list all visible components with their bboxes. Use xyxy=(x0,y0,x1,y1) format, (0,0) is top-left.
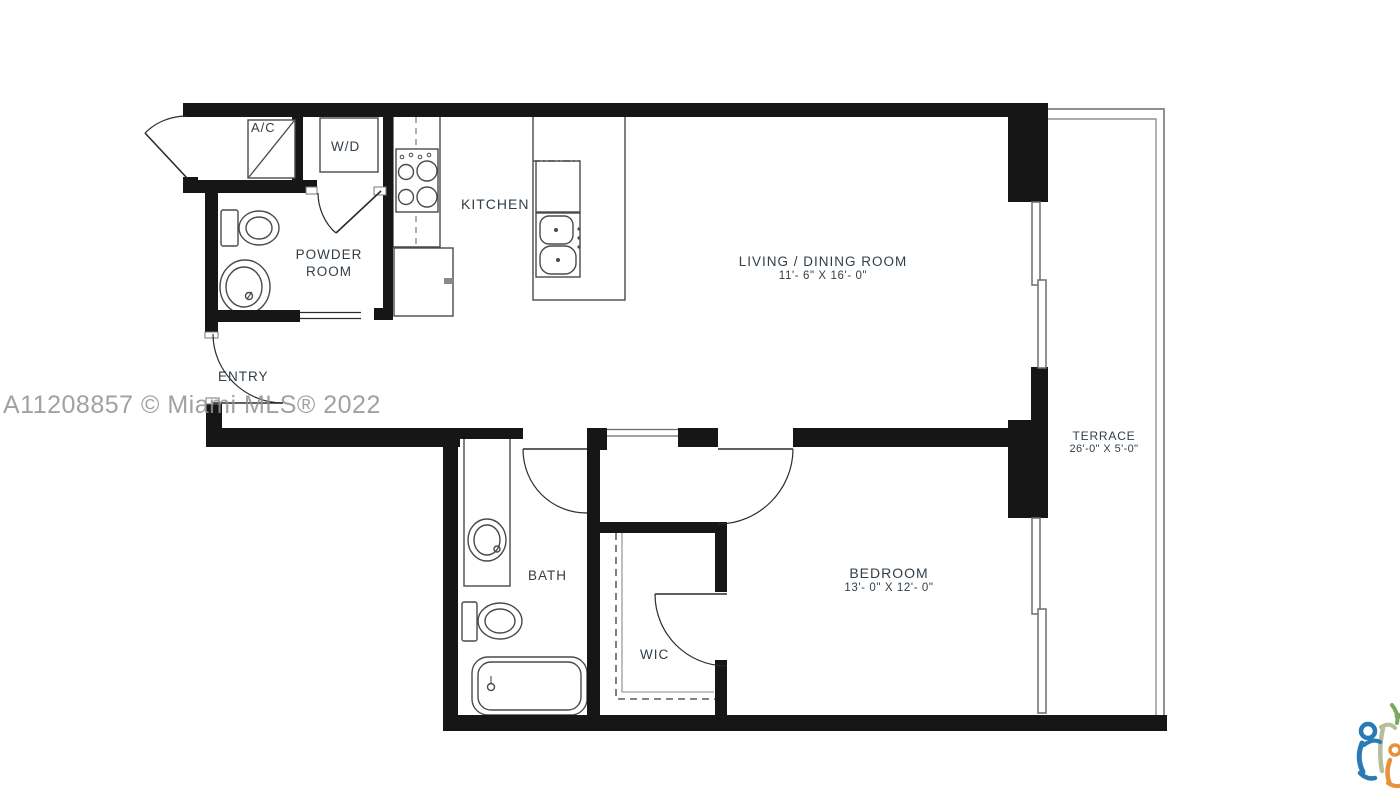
room-label-bath: BATH xyxy=(528,568,567,583)
room-label-terrace: TERRACE xyxy=(1073,429,1136,443)
floorplan-canvas: A/C W/D KITCHEN POWDER ROOM ENTRY LIVING… xyxy=(0,0,1400,808)
bath-toilet-icon xyxy=(462,602,522,641)
room-label-wd: W/D xyxy=(331,139,360,154)
room-label-living: LIVING / DINING ROOM xyxy=(739,254,908,269)
powder-pocket-door xyxy=(300,313,361,319)
cased-opening xyxy=(607,426,678,448)
powder-toilet-icon xyxy=(221,210,279,246)
terrace-boundary xyxy=(1048,109,1164,729)
powder-line1: POWDER xyxy=(296,246,363,263)
bathtub-icon xyxy=(472,657,587,715)
powder-sink-icon xyxy=(220,260,270,314)
living-sliding-door xyxy=(1032,202,1046,368)
room-label-powder: POWDER ROOM xyxy=(296,246,363,280)
fridge-icon xyxy=(394,248,453,316)
brokerage-logo-icon xyxy=(1359,705,1400,786)
room-dims-bedroom: 13'- 0" X 12'- 0" xyxy=(844,582,933,594)
closet-shelf-lines xyxy=(616,533,726,699)
bedroom-sliding-door xyxy=(1032,518,1046,713)
powder-line2: ROOM xyxy=(296,263,363,280)
stove-icon xyxy=(396,149,438,212)
bedroom-door-arc xyxy=(718,449,793,524)
bath-vanity-icon xyxy=(464,438,510,586)
powder-door-arc xyxy=(318,191,381,233)
room-label-entry: ENTRY xyxy=(218,369,269,384)
kitchen-island-icon xyxy=(533,113,625,300)
room-dims-terrace: 26'-0" X 5'-0" xyxy=(1070,443,1139,455)
room-label-ac: A/C xyxy=(251,120,276,135)
room-label-wic: WIC xyxy=(640,647,669,662)
bath-door-arc xyxy=(523,449,587,513)
mls-watermark: A11208857 © Miami MLS® 2022 xyxy=(3,391,381,420)
front-door-arc xyxy=(145,116,187,178)
room-label-kitchen: KITCHEN xyxy=(461,196,529,212)
room-dims-living: 11'- 6" X 16'- 0" xyxy=(779,270,867,282)
room-label-bedroom: BEDROOM xyxy=(849,565,928,581)
